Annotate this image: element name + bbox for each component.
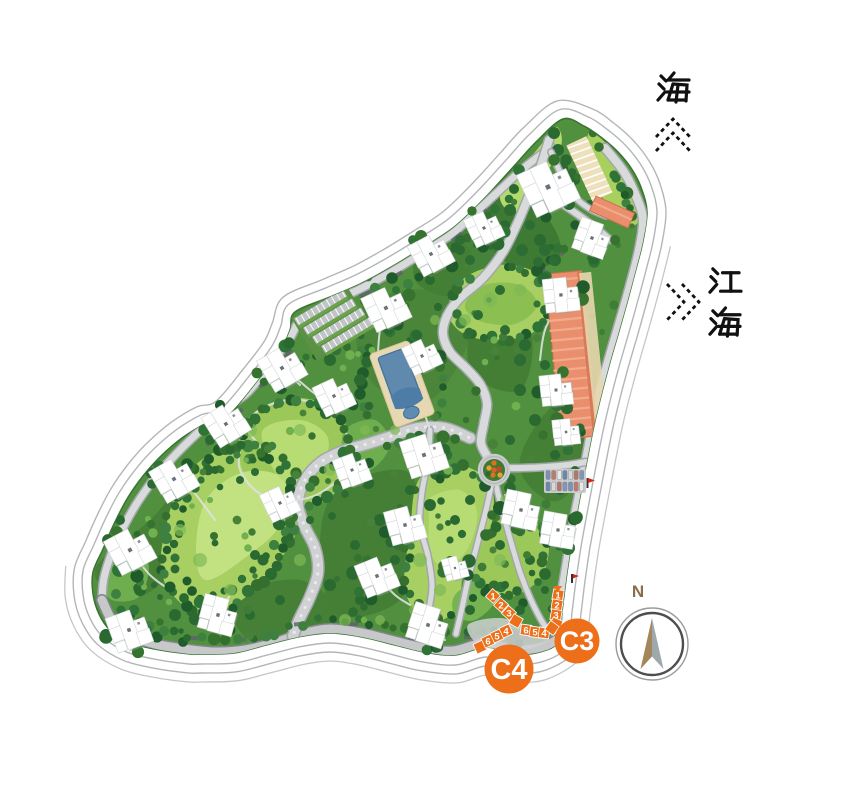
svg-text:3: 3 bbox=[506, 608, 511, 619]
svg-text:C3: C3 bbox=[560, 626, 595, 656]
svg-text:5: 5 bbox=[494, 631, 500, 642]
svg-text:3: 3 bbox=[553, 610, 558, 621]
svg-text:6: 6 bbox=[485, 636, 490, 647]
svg-text:C4: C4 bbox=[490, 654, 527, 686]
svg-text:6: 6 bbox=[523, 625, 528, 636]
svg-text:4: 4 bbox=[541, 628, 547, 639]
svg-text:5: 5 bbox=[532, 627, 538, 638]
svg-text:2: 2 bbox=[498, 600, 503, 611]
svg-text:1: 1 bbox=[490, 591, 496, 602]
svg-text:4: 4 bbox=[503, 626, 509, 637]
svg-text:N: N bbox=[632, 582, 644, 601]
